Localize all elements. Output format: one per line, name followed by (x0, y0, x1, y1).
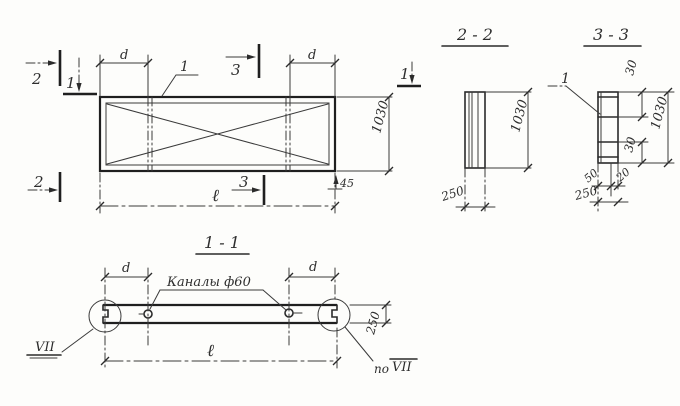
slab-profile (103, 305, 337, 323)
section-mark-1-left-label: 1 (66, 74, 76, 92)
section-3-3-item-leader-label: 1 (561, 71, 570, 87)
section-mark-2-top-label: 2 (31, 70, 42, 88)
section-mark-2-bottom: 2 (28, 172, 60, 202)
section-3-3-dim-250-label: 250 (572, 183, 599, 203)
section-1-1-dim-length: ℓ (101, 341, 341, 365)
arrow-right-icon (49, 187, 58, 192)
detail-right-prefix-label: по (374, 362, 389, 376)
section-3-3-dim-30-top: 30 (622, 58, 646, 121)
plan-view: 2 1 3 2 3 (26, 44, 421, 213)
plan-dim-45-label: 45 (339, 177, 354, 190)
plan-diagonal-bracing (107, 104, 328, 164)
detail-right-label: VII (392, 360, 413, 375)
section-mark-1-left: 1 (63, 58, 97, 94)
plan-item-leader: 1 (162, 59, 198, 96)
detail-circle-right (318, 299, 350, 331)
section-mark-3-bottom-label: 3 (239, 173, 249, 191)
section-3-3-bottom-dims: 50 20 250 (572, 163, 632, 214)
detail-right-callout: по VII (345, 327, 417, 376)
section-3-3-dim-30-bottom: 30 (621, 135, 646, 167)
section-2-2-dim-250: 250 (439, 168, 495, 213)
plan-dim-d-right: d (286, 48, 339, 97)
section-1-1-dim-250: 250 (350, 301, 391, 337)
slab-right-end-notch (332, 305, 337, 323)
plan-dim-d-left-label: d (120, 48, 128, 63)
section-2-2-title: 2 - 2 (456, 25, 493, 44)
detail-left-label: VII (35, 340, 56, 355)
section-3-3-rungs (598, 92, 618, 163)
section-3-3-dim-30-bottom-label: 30 (621, 135, 639, 154)
section-mark-2-top: 2 (26, 50, 60, 88)
plan-dim-d-right-label: d (308, 48, 316, 63)
plan-dim-length-label: ℓ (212, 186, 219, 206)
section-mark-3-top: 3 (226, 44, 259, 79)
technical-drawing-svg: 2 1 3 2 3 (0, 0, 680, 406)
channel-holes (139, 309, 302, 318)
section-1-1-title: 1 - 1 (204, 233, 240, 252)
arrow-down-icon (409, 75, 414, 84)
section-3-3-dim-20-label: 20 (613, 165, 633, 185)
section-1-1-dim-d-left: d (101, 261, 152, 281)
channels-label: Каналы ф60 (166, 275, 251, 290)
section-1-1-dim-250-label: 250 (363, 310, 383, 337)
section-3-3-dim-1030: 1030 (648, 88, 672, 167)
section-1-1-dim-d-right-label: d (309, 260, 317, 275)
section-mark-3-bottom: 3 (232, 173, 264, 205)
detail-left-callout: VII (27, 329, 93, 358)
plan-dim-d-left: d (96, 48, 152, 97)
section-1-1-dim-d-left-label: d (122, 261, 130, 276)
plan-dim-length: ℓ (96, 173, 339, 213)
section-mark-3-top-label: 3 (231, 61, 241, 79)
section-2-2-dim-1030: 1030 (485, 88, 532, 172)
plan-item-leader-label: 1 (180, 59, 189, 75)
plan-dim-45: 45 (328, 175, 354, 190)
section-mark-1-right: 1 (397, 62, 421, 86)
arrow-up-icon (333, 175, 338, 184)
arrow-right-icon (48, 60, 57, 65)
section-1-1-dim-length-label: ℓ (207, 341, 214, 361)
section-2-2-dim-250-label: 250 (439, 183, 466, 204)
arrow-down-icon (76, 83, 81, 92)
section-1-1: 1 - 1 d (27, 233, 417, 376)
section-3-3-dim-30-top-label: 30 (622, 58, 640, 77)
section-2-2-profile (465, 92, 485, 168)
plan-dim-1030: 1030 (337, 93, 393, 175)
drawing-sheet: 2 1 3 2 3 (0, 0, 680, 406)
section-mark-1-right-label: 1 (400, 65, 410, 83)
section-mark-2-bottom-label: 2 (33, 173, 44, 191)
arrow-right-icon (247, 54, 256, 59)
section-1-1-dim-d-right: d (285, 260, 339, 281)
arrow-right-icon (252, 187, 261, 192)
section-2-2: 2 - 2 1030 250 (439, 25, 532, 213)
section-3-3: 3 - 3 1 30 (548, 25, 674, 214)
section-3-3-item-leader: 1 (548, 71, 600, 114)
section-3-3-title: 3 - 3 (593, 25, 629, 44)
section-2-2-inner-lines (469, 92, 478, 168)
